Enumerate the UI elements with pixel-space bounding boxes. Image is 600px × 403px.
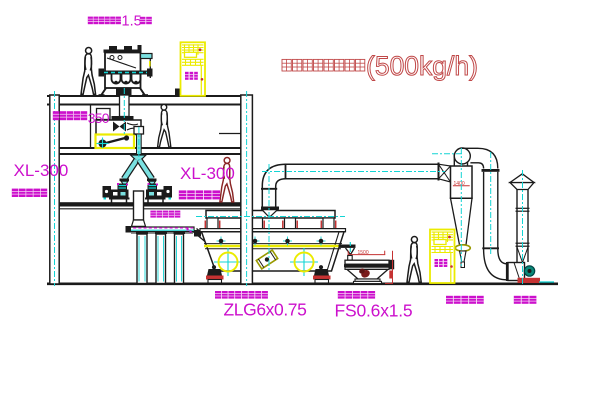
svg-text:FS0.6x1.5: FS0.6x1.5 [335, 301, 413, 321]
svg-text:1400: 1400 [454, 181, 465, 187]
svg-text:(500kg/h): (500kg/h) [366, 51, 478, 81]
svg-text:1.5: 1.5 [122, 14, 142, 30]
svg-text:ZLG6x0.75: ZLG6x0.75 [224, 300, 307, 320]
svg-text:350: 350 [88, 110, 110, 126]
svg-text:XL-300: XL-300 [14, 161, 69, 180]
svg-text:XL-300: XL-300 [180, 164, 235, 183]
svg-text:1500: 1500 [358, 250, 369, 256]
